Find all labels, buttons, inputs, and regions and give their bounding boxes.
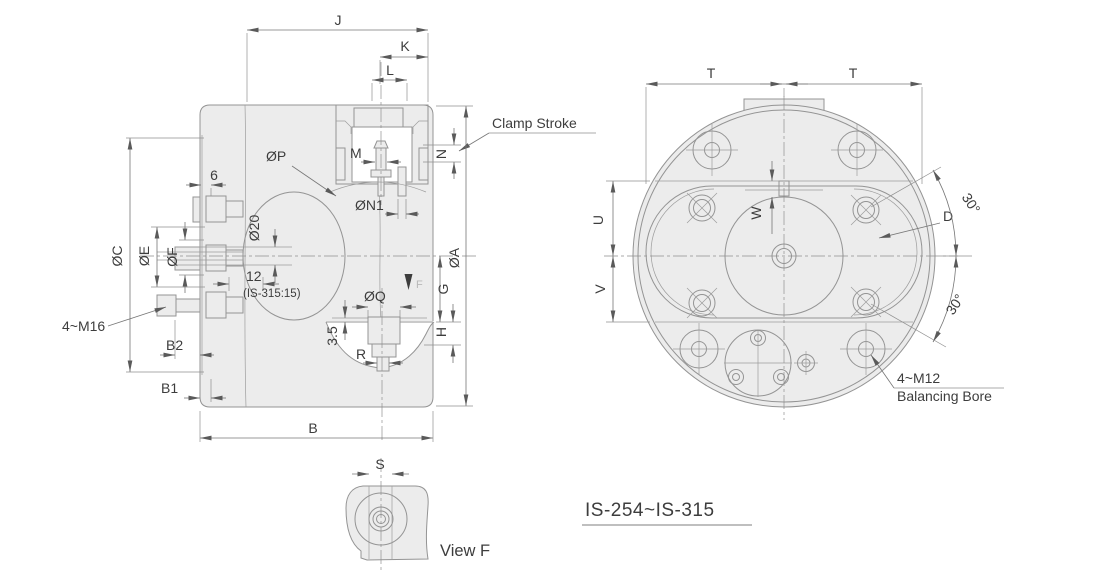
dim-label-phi-p: ØP (266, 148, 286, 164)
dim-label-angle-upper: 30° (959, 190, 984, 216)
dim-label-b1: B1 (161, 380, 178, 396)
dim-label-v: V (592, 284, 608, 294)
dim-label-balance-name: Balancing Bore (897, 388, 992, 404)
dim-label-phi-c: ØC (109, 246, 125, 267)
n1-pin (398, 167, 406, 196)
dim-label-three-five: 3.5 (324, 326, 340, 346)
dim-label-phi-20: Ø20 (246, 215, 262, 242)
model-range-title: IS-254~IS-315 (585, 500, 715, 521)
chuck-technical-drawing: J K L 6 ØC ØE (0, 0, 1114, 573)
dim-label-n: N (433, 149, 449, 159)
dim-label-view-direction: F (416, 279, 423, 291)
m16-bolt-shaft (176, 299, 200, 312)
dim-label-g: G (435, 284, 451, 295)
technical-drawing-page: J K L 6 ØC ØE (0, 0, 1114, 573)
dim-label-t-left: T (707, 65, 716, 81)
dim-label-w: W (748, 206, 764, 220)
detail-view: S View F (346, 456, 490, 570)
dim-label-twelve-note: (IS-315:15) (243, 288, 301, 300)
dim-label-j: J (335, 12, 342, 28)
dim-label-m: M (350, 145, 362, 161)
m16-bolt-head (157, 295, 176, 316)
section-view: J K L 6 ØC ØE (62, 12, 596, 442)
dim-label-u: U (590, 215, 606, 225)
dim-label-phi-f: ØF (164, 247, 180, 266)
dim-label-four-m16: 4~M16 (62, 318, 105, 334)
view-f-caption: View F (440, 542, 490, 560)
drawing-title: IS-254~IS-315 (582, 500, 752, 525)
dim-label-t-right: T (849, 65, 858, 81)
dim-label-b: B (308, 420, 317, 436)
dim-label-r: R (356, 346, 366, 362)
dim-label-six: 6 (210, 167, 218, 183)
dim-label-l: L (386, 62, 394, 78)
dim-label-h: H (433, 327, 449, 337)
dim-label-k: K (400, 38, 410, 54)
dim-label-twelve: 12 (246, 268, 262, 284)
dim-label-phi-e: ØE (136, 246, 152, 266)
dim-label-balance-qty: 4~M12 (897, 370, 940, 386)
dim-label-phi-n1: ØN1 (355, 197, 384, 213)
dim-label-phi-q: ØQ (364, 288, 386, 304)
dim-label-phi-a: ØA (446, 247, 462, 268)
front-view: T T U V W D 30° 30° 4~M12 B (590, 65, 1004, 420)
dim-label-s: S (375, 456, 384, 472)
dim-label-clamp-stroke: Clamp Stroke (492, 115, 577, 131)
